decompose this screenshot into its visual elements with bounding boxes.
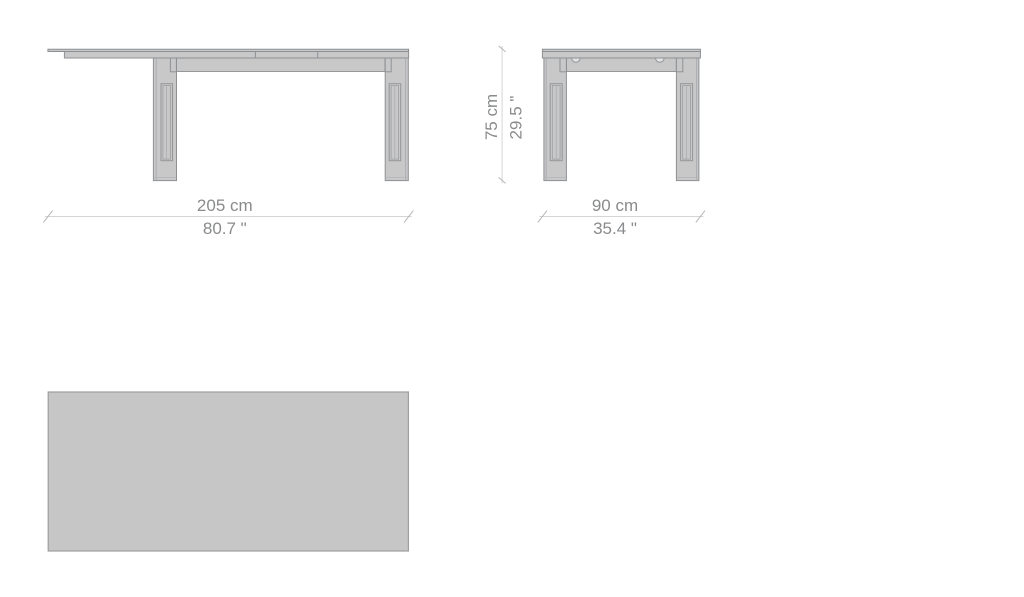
svg-text:90 cm: 90 cm xyxy=(592,196,638,215)
svg-text:29.5 ": 29.5 " xyxy=(507,96,526,140)
svg-text:205 cm: 205 cm xyxy=(197,196,253,215)
svg-text:80.7 ": 80.7 " xyxy=(203,219,247,238)
svg-text:35.4 ": 35.4 " xyxy=(593,219,637,238)
svg-text:75 cm: 75 cm xyxy=(482,94,501,140)
